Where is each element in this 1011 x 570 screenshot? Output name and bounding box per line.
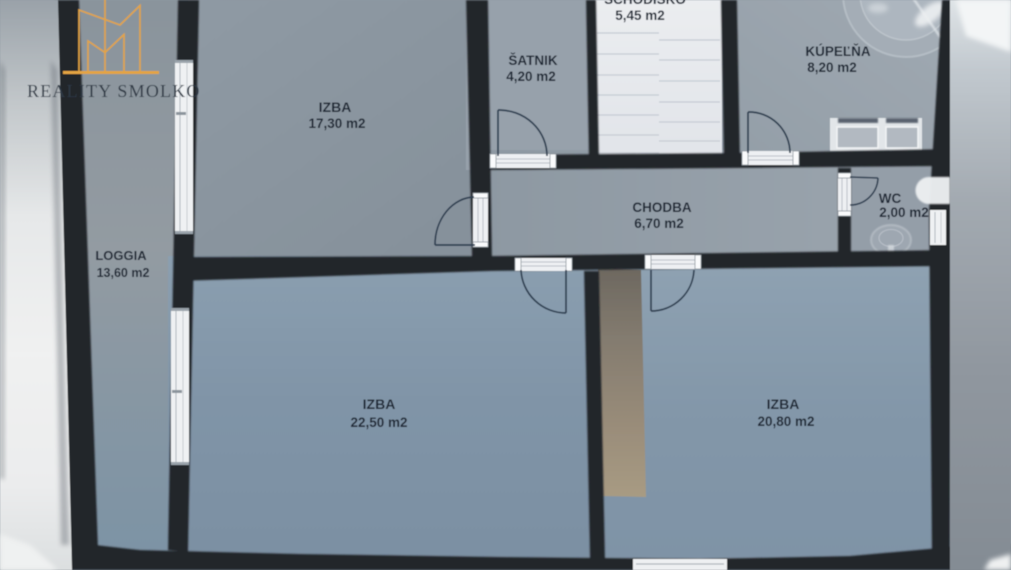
svg-text:13,60 m2: 13,60 m2 [97,266,150,280]
svg-text:20,80 m2: 20,80 m2 [757,414,814,429]
svg-text:REALITY SMOLKO: REALITY SMOLKO [27,81,201,101]
svg-text:CHODBA: CHODBA [632,200,691,215]
svg-text:17,30 m2: 17,30 m2 [308,116,365,131]
svg-text:4,20 m2: 4,20 m2 [506,69,556,84]
svg-text:5,45 m2: 5,45 m2 [615,8,665,23]
svg-text:WC: WC [879,191,902,206]
svg-text:ŠATNIK: ŠATNIK [508,53,557,68]
svg-text:8,20 m2: 8,20 m2 [807,60,857,75]
svg-text:2,00 m2: 2,00 m2 [879,205,929,220]
svg-text:IZBA: IZBA [767,396,800,412]
svg-text:6,70 m2: 6,70 m2 [634,216,684,231]
svg-text:IZBA: IZBA [363,396,396,412]
svg-text:KÚPEĽŇA: KÚPEĽŇA [805,44,871,59]
svg-text:LOGGIA: LOGGIA [95,248,147,263]
svg-text:SCHODISKO: SCHODISKO [604,0,686,7]
svg-text:IZBA: IZBA [319,99,352,115]
svg-text:22,50 m2: 22,50 m2 [350,415,407,430]
